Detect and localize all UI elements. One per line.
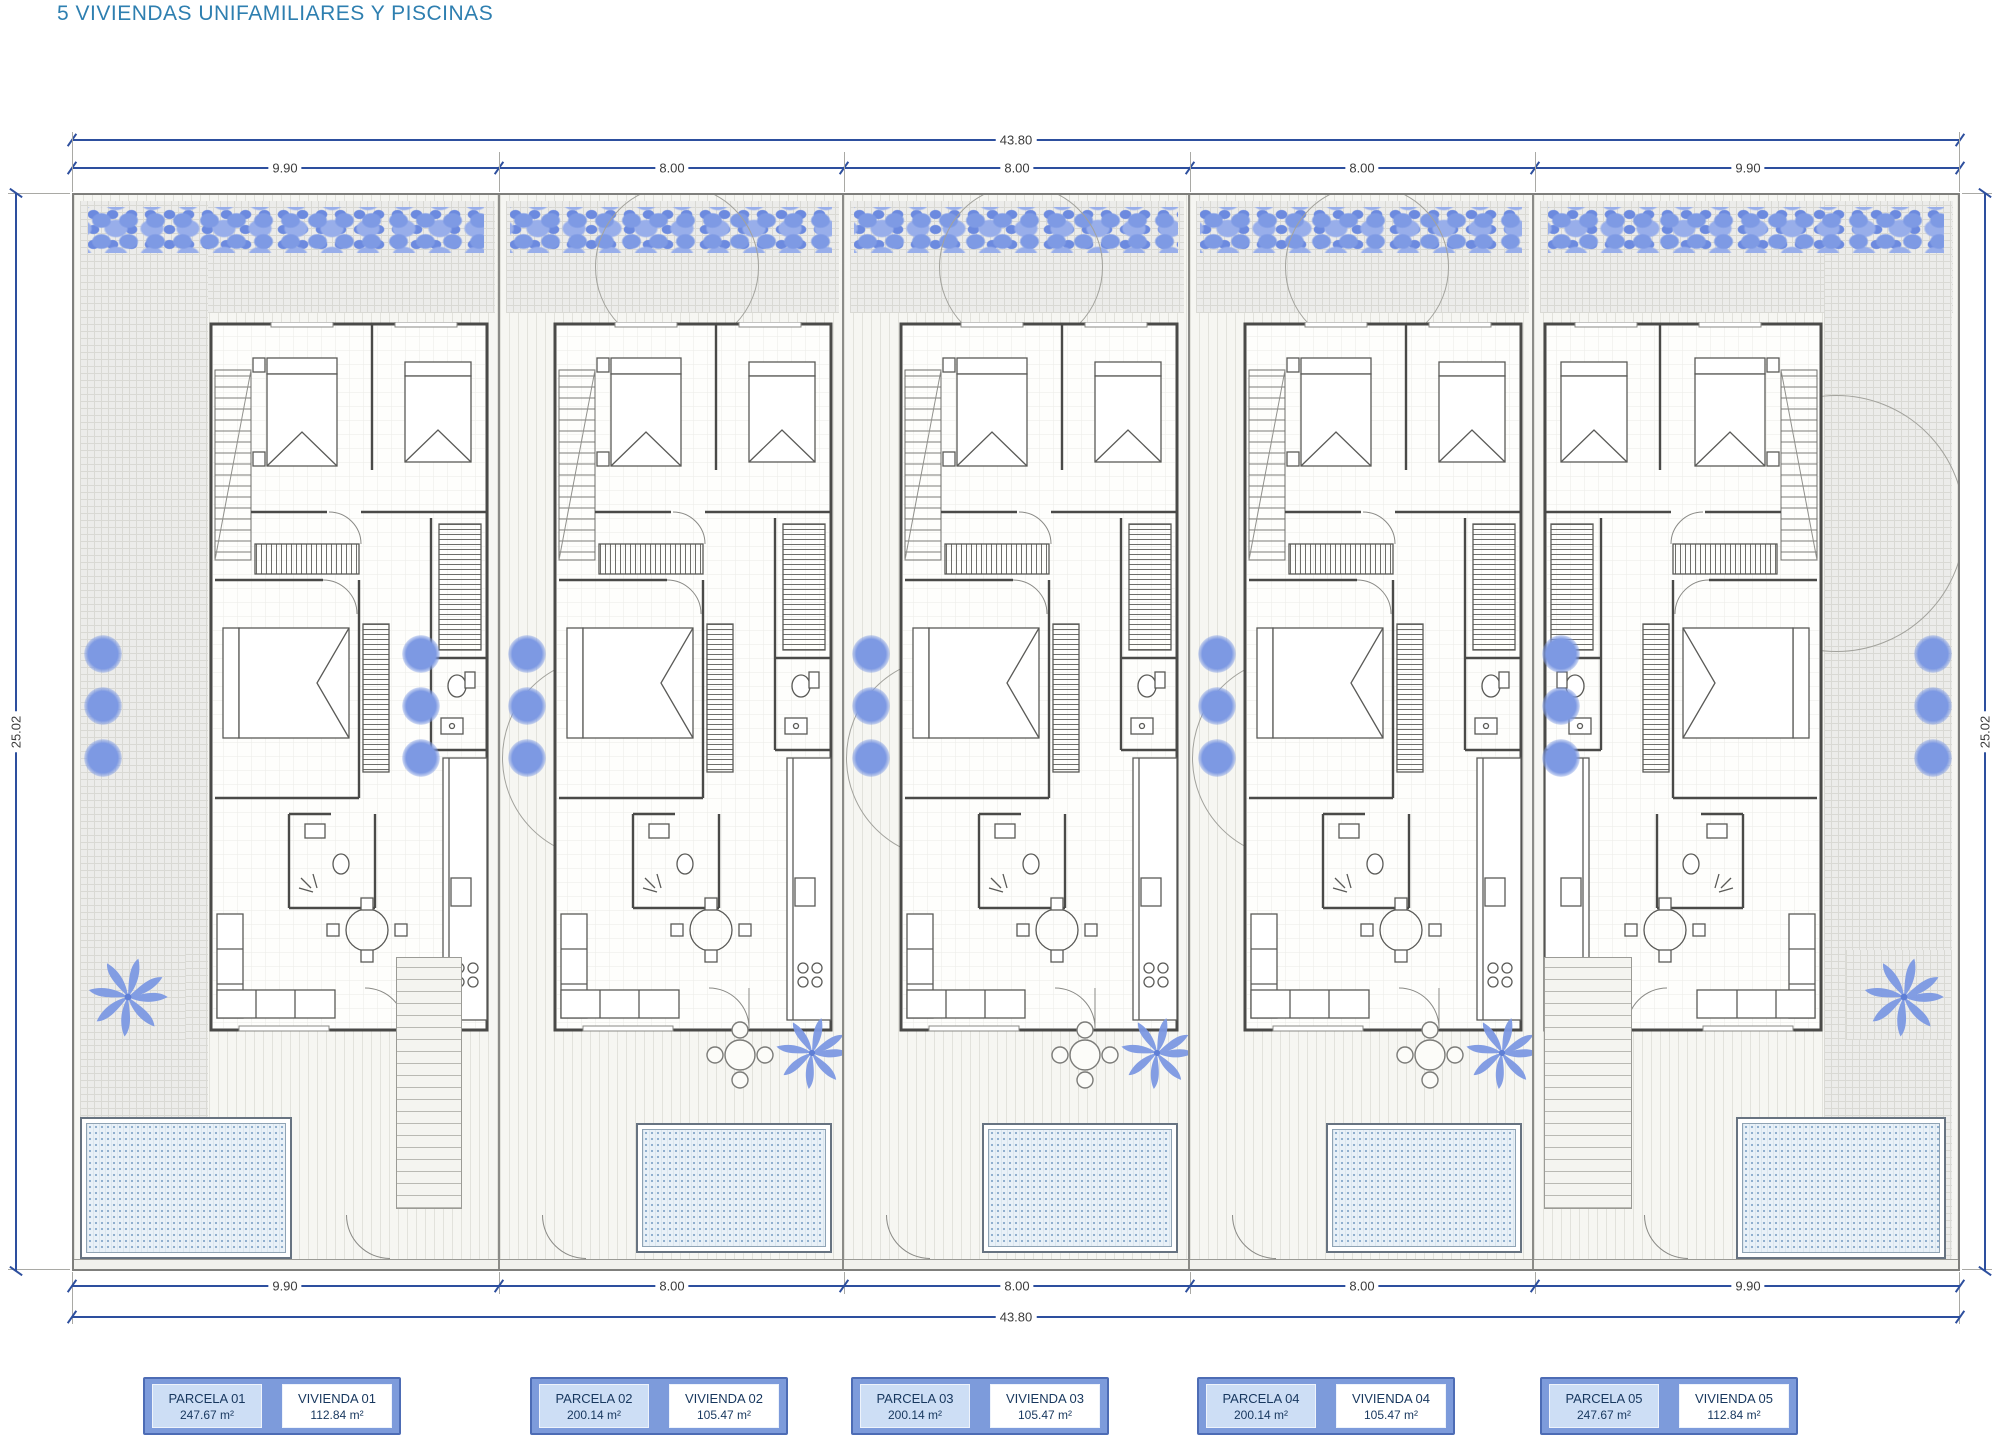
legend-parcela-05: PARCELA 05 247.67 m² <box>1549 1384 1659 1428</box>
bush <box>402 635 440 673</box>
pool <box>1736 1117 1946 1259</box>
site-plot <box>72 193 1960 1271</box>
vivienda-area: 105.47 m² <box>1364 1408 1418 1422</box>
pool-water <box>1332 1129 1516 1247</box>
dim-label-left: 25.02 <box>9 712 24 753</box>
palm-tree <box>1462 1013 1534 1093</box>
dim-label-right: 25.02 <box>1978 712 1993 753</box>
dim-label-top-seg-5: 9.90 <box>1731 161 1764 176</box>
dim-label-top-overall: 43.80 <box>996 133 1037 148</box>
vivienda-area: 105.47 m² <box>1018 1408 1072 1422</box>
parcela-label: PARCELA 04 <box>1222 1391 1299 1406</box>
parcela-area: 200.14 m² <box>1234 1408 1288 1422</box>
dim-label-bottom-seg-2: 8.00 <box>655 1279 688 1294</box>
extension-line <box>1962 1269 1992 1270</box>
dim-label-bottom-seg-3: 8.00 <box>1000 1279 1033 1294</box>
outdoor-table <box>1049 1019 1121 1091</box>
palm-tree <box>1860 953 1948 1041</box>
parcela-label: PARCELA 03 <box>876 1391 953 1406</box>
page-title: 5 VIVIENDAS UNIFAMILIARES Y PISCINAS <box>57 2 493 26</box>
bush <box>1542 635 1580 673</box>
bush <box>1198 687 1236 725</box>
legend-vivienda-04: VIVIENDA 04 105.47 m² <box>1336 1384 1446 1428</box>
sidewalk-strip <box>1190 1259 1532 1269</box>
sidewalk-strip <box>74 1259 498 1269</box>
pool-water <box>86 1123 286 1253</box>
pool <box>1326 1123 1522 1253</box>
parcel-05 <box>1534 195 1958 1269</box>
sidewalk-strip <box>844 1259 1187 1269</box>
house-plan <box>553 322 833 1032</box>
vivienda-label: VIVIENDA 03 <box>1006 1391 1084 1406</box>
pool <box>80 1117 292 1259</box>
extension-line <box>72 132 73 192</box>
bush <box>1914 739 1952 777</box>
bush <box>84 687 122 725</box>
legend-parcela-01: PARCELA 01 247.67 m² <box>152 1384 262 1428</box>
pool-water <box>988 1129 1172 1247</box>
parcel-02 <box>500 195 844 1269</box>
house-plan <box>1243 322 1523 1032</box>
extension-line <box>1959 132 1960 192</box>
vivienda-area: 112.84 m² <box>310 1408 363 1422</box>
pergola-slats <box>1544 957 1632 1209</box>
vivienda-label: VIVIENDA 05 <box>1695 1391 1773 1406</box>
legend-pair-03: PARCELA 03 200.14 m² VIVIENDA 03 105.47 … <box>851 1377 1109 1435</box>
extension-line <box>1535 152 1536 192</box>
bush <box>402 687 440 725</box>
legend-parcela-03: PARCELA 03 200.14 m² <box>860 1384 970 1428</box>
bush <box>84 739 122 777</box>
extension-line <box>499 152 500 192</box>
house-plan <box>1543 322 1823 1032</box>
dim-label-top-seg-1: 9.90 <box>268 161 301 176</box>
bush <box>1542 739 1580 777</box>
bush <box>402 739 440 777</box>
vivienda-area: 112.84 m² <box>1707 1408 1760 1422</box>
pool-water <box>642 1129 826 1247</box>
extension-line <box>1190 152 1191 192</box>
vivienda-label: VIVIENDA 02 <box>685 1391 763 1406</box>
vivienda-label: VIVIENDA 01 <box>298 1391 376 1406</box>
parcela-area: 247.67 m² <box>1577 1408 1631 1422</box>
bush <box>1198 635 1236 673</box>
parcela-label: PARCELA 01 <box>168 1391 245 1406</box>
dim-label-bottom-overall: 43.80 <box>996 1310 1037 1325</box>
parcela-label: PARCELA 02 <box>555 1391 632 1406</box>
legend-vivienda-03: VIVIENDA 03 105.47 m² <box>990 1384 1100 1428</box>
legend-pair-01: PARCELA 01 247.67 m² VIVIENDA 01 112.84 … <box>143 1377 401 1435</box>
parcel-04 <box>1190 195 1534 1269</box>
palm-tree <box>84 953 172 1041</box>
outdoor-table <box>704 1019 776 1091</box>
bush <box>1198 739 1236 777</box>
dim-label-top-seg-3: 8.00 <box>1000 161 1033 176</box>
bush <box>508 687 546 725</box>
pool <box>636 1123 832 1253</box>
pergola-slats <box>396 957 462 1209</box>
legend-pair-04: PARCELA 04 200.14 m² VIVIENDA 04 105.47 … <box>1197 1377 1455 1435</box>
palm-tree <box>1117 1013 1189 1093</box>
legend-parcela-04: PARCELA 04 200.14 m² <box>1206 1384 1316 1428</box>
floorplan-page: { "title": "5 VIVIENDAS UNIFAMILIARES Y … <box>0 0 2000 1451</box>
parcela-area: 247.67 m² <box>180 1408 234 1422</box>
legend-parcela-02: PARCELA 02 200.14 m² <box>539 1384 649 1428</box>
vivienda-area: 105.47 m² <box>697 1408 751 1422</box>
legend-vivienda-05: VIVIENDA 05 112.84 m² <box>1679 1384 1789 1428</box>
bush <box>1542 687 1580 725</box>
bush <box>508 739 546 777</box>
bush <box>84 635 122 673</box>
palm-tree <box>772 1013 844 1093</box>
dim-label-top-seg-4: 8.00 <box>1345 161 1378 176</box>
house-plan <box>899 322 1179 1032</box>
bush <box>508 635 546 673</box>
parcela-area: 200.14 m² <box>567 1408 621 1422</box>
legend-vivienda-02: VIVIENDA 02 105.47 m² <box>669 1384 779 1428</box>
dim-label-bottom-seg-1: 9.90 <box>268 1279 301 1294</box>
bush <box>1914 635 1952 673</box>
house-plan <box>209 322 489 1032</box>
sidewalk-strip <box>1534 1259 1958 1269</box>
pool-water <box>1742 1123 1940 1253</box>
parcel-01 <box>74 195 500 1269</box>
outdoor-table <box>1394 1019 1466 1091</box>
pool <box>982 1123 1178 1253</box>
vivienda-label: VIVIENDA 04 <box>1352 1391 1430 1406</box>
dim-label-bottom-seg-4: 8.00 <box>1345 1279 1378 1294</box>
bush <box>1914 687 1952 725</box>
legend-vivienda-01: VIVIENDA 01 112.84 m² <box>282 1384 392 1428</box>
gravel-side-yard <box>80 201 208 1263</box>
parcel-03 <box>844 195 1189 1269</box>
legend-pair-05: PARCELA 05 247.67 m² VIVIENDA 05 112.84 … <box>1540 1377 1798 1435</box>
sidewalk-strip <box>500 1259 842 1269</box>
gravel-side-yard <box>1824 201 1952 1263</box>
parcela-area: 200.14 m² <box>888 1408 942 1422</box>
dim-label-bottom-seg-5: 9.90 <box>1731 1279 1764 1294</box>
legend: PARCELA 01 247.67 m² VIVIENDA 01 112.84 … <box>0 1377 2000 1437</box>
legend-pair-02: PARCELA 02 200.14 m² VIVIENDA 02 105.47 … <box>530 1377 788 1435</box>
dim-label-top-seg-2: 8.00 <box>655 161 688 176</box>
hedge-row <box>1548 207 1944 253</box>
hedge-row <box>88 207 484 253</box>
extension-line <box>844 152 845 192</box>
parcela-label: PARCELA 05 <box>1565 1391 1642 1406</box>
